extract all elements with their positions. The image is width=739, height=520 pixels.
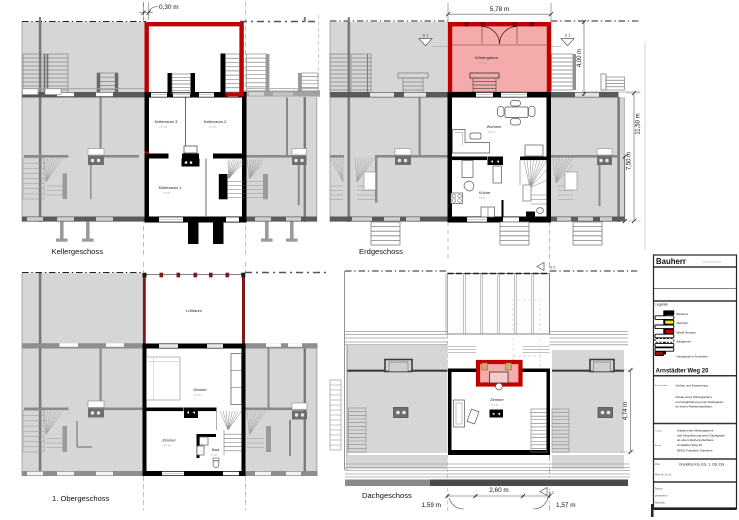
svg-text:Bestand: Bestand: [677, 312, 688, 316]
svg-text:21,6 qm: 21,6 qm: [491, 405, 499, 407]
svg-text:S 1: S 1: [422, 33, 429, 38]
svg-text:5,78 m: 5,78 m: [490, 6, 510, 13]
svg-text:Legende: Legende: [656, 303, 669, 307]
svg-text:Kellergeschoss: Kellergeschoss: [52, 247, 104, 256]
svg-text:Plan:: Plan:: [655, 463, 661, 466]
svg-text:7,50 m: 7,50 m: [627, 152, 633, 170]
svg-text:gezeichnet:: gezeichnet:: [655, 495, 668, 498]
svg-text:Dachgeschoss: Dachgeschoss: [362, 491, 412, 500]
svg-text:Wohnen: Wohnen: [487, 124, 502, 129]
svg-text:Zimmer: Zimmer: [162, 438, 176, 443]
svg-text:Baugrenze: Baugrenze: [677, 340, 692, 344]
svg-text:1,57 m: 1,57 m: [556, 502, 576, 509]
svg-text:Arnstädter Weg 20: Arnstädter Weg 20: [656, 369, 710, 375]
svg-text:9,5 qm: 9,5 qm: [164, 193, 171, 195]
svg-text:Bauherr: Bauherr: [656, 257, 686, 266]
svg-text:Plan-Nr. 02-11:: Plan-Nr. 02-11:: [655, 474, 672, 477]
svg-text:Datum:: Datum:: [655, 488, 663, 491]
svg-text:Zimmer: Zimmer: [490, 397, 504, 402]
svg-text:an einem Reihenmittelhaus: an einem Reihenmittelhaus: [677, 438, 714, 442]
svg-text:Kellerraum 3: Kellerraum 3: [155, 119, 178, 124]
svg-text:an einem Reihenmittelhaus.: an einem Reihenmittelhaus.: [676, 405, 713, 409]
svg-text:0,30 m: 0,30 m: [159, 4, 179, 11]
svg-text:4,9 qm: 4,9 qm: [211, 455, 218, 457]
svg-text:Erdgeschoss: Erdgeschoss: [359, 247, 403, 256]
svg-text:Anbau eines Wintergartens: Anbau eines Wintergartens: [677, 429, 714, 433]
svg-text:Bad: Bad: [212, 447, 219, 452]
svg-text:65931 Frankfurt/ Sofsheim: 65931 Frankfurt/ Sofsheim: [677, 448, 713, 452]
svg-text:16,7 qm: 16,7 qm: [209, 127, 217, 129]
svg-text:S 2: S 2: [550, 266, 555, 270]
svg-text:Abbruch: Abbruch: [677, 321, 689, 325]
svg-text:Luftraum: Luftraum: [186, 308, 202, 313]
svg-text:Maßstab:: Maßstab:: [655, 502, 666, 505]
svg-text:14,1 qm: 14,1 qm: [163, 445, 171, 447]
svg-text:Wintergarten: Wintergarten: [475, 55, 498, 60]
svg-text:9,5 qm: 9,5 qm: [479, 198, 486, 200]
svg-text:Kellerraum 2: Kellerraum 2: [204, 119, 227, 124]
svg-text:und Vergrößerung einer Dachgau: und Vergrößerung einer Dachgaube: [677, 433, 725, 437]
svg-text:Bauherr Mustermann: Bauherr Mustermann: [703, 261, 722, 264]
svg-text:19,1 qm: 19,1 qm: [479, 63, 487, 65]
svg-text:Umbau und Erweiterung: Umbau und Erweiterung: [676, 383, 709, 387]
svg-text:Projekt:: Projekt:: [655, 430, 662, 433]
svg-text:S 1: S 1: [564, 33, 571, 38]
svg-text:Bauvorhaben:: Bauvorhaben:: [655, 384, 668, 387]
svg-text:Anbau eines Wintergartens: Anbau eines Wintergartens: [676, 395, 713, 399]
svg-text:Bauort:: Bauort:: [655, 444, 662, 447]
svg-text:1. Obergeschoss: 1. Obergeschoss: [52, 494, 110, 503]
svg-text:16,5 qm: 16,5 qm: [194, 395, 202, 397]
svg-text:Wand Neubau: Wand Neubau: [677, 330, 696, 334]
svg-text:4,74 m: 4,74 m: [623, 402, 629, 420]
svg-text:1,59 m: 1,59 m: [421, 502, 441, 509]
svg-text:18,9 qm: 18,9 qm: [488, 132, 496, 134]
svg-text:und Vergrößerung einer Dachgau: und Vergrößerung einer Dachgaube: [676, 400, 724, 404]
svg-text:Arnstädter Weg 20: Arnstädter Weg 20: [677, 443, 702, 447]
svg-text:Zimmer: Zimmer: [193, 387, 207, 392]
svg-text:17,1 qm: 17,1 qm: [160, 127, 168, 129]
svg-text:Kellerraum 1: Kellerraum 1: [159, 185, 182, 190]
svg-text:4,00 m: 4,00 m: [577, 49, 583, 67]
svg-text:11,50 m: 11,50 m: [636, 113, 642, 134]
svg-text:Küche: Küche: [479, 190, 491, 195]
svg-text:Neubauteil in Ansichten: Neubauteil in Ansichten: [677, 355, 709, 359]
svg-text:S 2: S 2: [549, 491, 554, 495]
svg-text:Grundriss KG, EG, 1. OG, DG: Grundriss KG, EG, 1. OG, DG: [679, 462, 725, 466]
svg-text:2,60 m: 2,60 m: [489, 487, 509, 494]
